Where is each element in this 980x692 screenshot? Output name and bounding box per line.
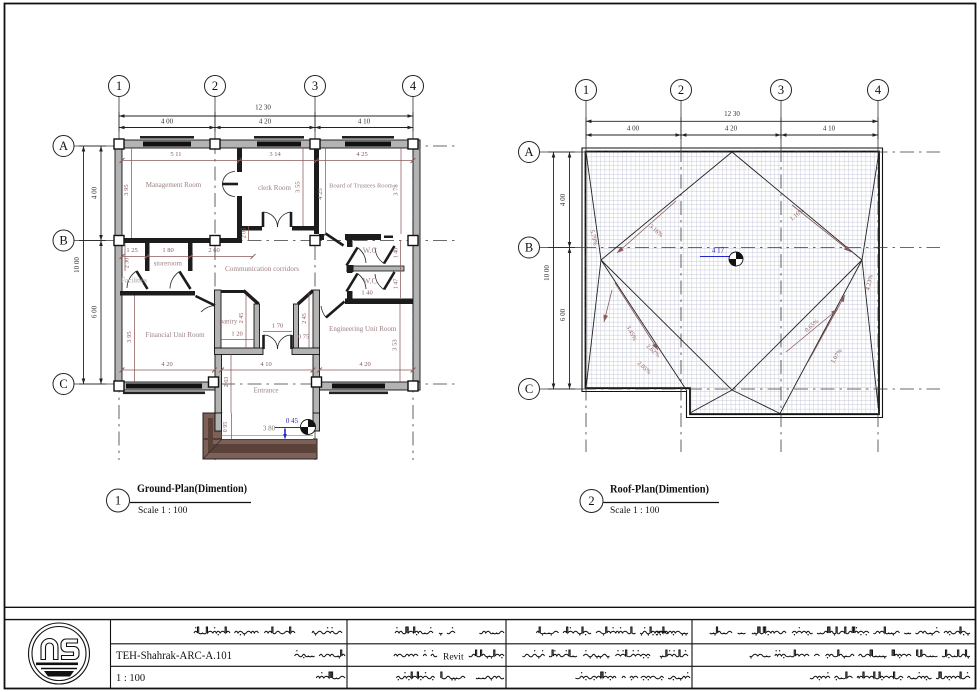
svg-text:B: B — [525, 241, 533, 255]
svg-text:C: C — [525, 382, 533, 396]
svg-text:2 45: 2 45 — [302, 313, 308, 324]
svg-text:2 63: 2 63 — [224, 377, 230, 388]
svg-text:2 30: 2 30 — [125, 258, 131, 269]
svg-text:3 14: 3 14 — [269, 151, 281, 158]
svg-text:clerk Room: clerk Room — [258, 184, 291, 192]
svg-text:A: A — [59, 139, 68, 153]
svg-text:2 60: 2 60 — [208, 247, 219, 254]
svg-text:storeroom: storeroom — [154, 260, 183, 268]
svg-text:3 55: 3 55 — [295, 181, 302, 192]
svg-text:0 45: 0 45 — [286, 417, 299, 425]
svg-text:4 25: 4 25 — [317, 188, 324, 199]
svg-text:2: 2 — [212, 79, 218, 93]
svg-text:4 17: 4 17 — [712, 247, 725, 255]
svg-text:Financial Unit Room: Financial Unit Room — [145, 331, 205, 339]
svg-text:4 10: 4 10 — [260, 361, 271, 368]
svg-text:4 20: 4 20 — [725, 125, 738, 133]
svg-text:Board of Trustees Room: Board of Trustees Room — [329, 183, 393, 190]
svg-text:TEH-Shahrak-ARC-A.101: TEH-Shahrak-ARC-A.101 — [116, 648, 232, 662]
svg-text:4 20: 4 20 — [359, 361, 370, 368]
svg-text:pantry: pantry — [219, 318, 237, 326]
svg-text:Ground-Plan(Dimention): Ground-Plan(Dimention) — [137, 481, 247, 495]
svg-text:10 00: 10 00 — [73, 257, 81, 273]
svg-text:3 78: 3 78 — [393, 184, 400, 195]
svg-text:4 00: 4 00 — [627, 125, 640, 133]
svg-text:12 30: 12 30 — [255, 104, 271, 112]
svg-text:Scale 1 : 100: Scale 1 : 100 — [138, 506, 188, 516]
svg-text:4: 4 — [875, 83, 882, 97]
svg-text:1: 1 — [116, 79, 122, 93]
svg-text:B: B — [59, 234, 67, 248]
svg-text:4: 4 — [410, 79, 417, 93]
svg-text:1 25: 1 25 — [126, 247, 137, 254]
svg-text:4 20: 4 20 — [259, 118, 272, 126]
svg-text:4 00: 4 00 — [559, 193, 567, 206]
svg-text:3 53: 3 53 — [392, 339, 399, 350]
svg-text:1: 1 — [583, 83, 589, 97]
svg-text:2 45: 2 45 — [239, 313, 245, 324]
svg-text:C: C — [59, 377, 67, 391]
svg-text:1 20: 1 20 — [231, 331, 242, 338]
svg-text:Entrance: Entrance — [254, 387, 279, 395]
svg-text:1 80: 1 80 — [162, 247, 173, 254]
svg-text:Scale 1 : 100: Scale 1 : 100 — [610, 506, 660, 516]
svg-text:Communication corridors: Communication corridors — [225, 265, 299, 273]
svg-text:1 40: 1 40 — [394, 248, 400, 259]
svg-text:1 : 100: 1 : 100 — [116, 673, 145, 684]
svg-text:W.C: W.C — [363, 277, 377, 286]
svg-text:1: 1 — [115, 494, 121, 508]
svg-text:4 20: 4 20 — [161, 361, 172, 368]
svg-text:5 11: 5 11 — [170, 151, 181, 158]
svg-text:3: 3 — [312, 79, 318, 93]
svg-text:1 70: 1 70 — [272, 323, 283, 330]
svg-text:1 47: 1 47 — [394, 279, 400, 290]
svg-text:4 25: 4 25 — [356, 151, 367, 158]
svg-text:A: A — [524, 145, 533, 159]
svg-text:6 00: 6 00 — [91, 305, 99, 318]
svg-text:2: 2 — [588, 494, 594, 508]
svg-text:4 00: 4 00 — [161, 118, 174, 126]
svg-text:3 95: 3 95 — [126, 331, 133, 342]
svg-text:Roof-Plan(Dimention): Roof-Plan(Dimention) — [610, 482, 709, 496]
svg-text:3 80: 3 80 — [263, 425, 276, 433]
svg-text:4 10: 4 10 — [823, 125, 836, 133]
svg-text:2: 2 — [678, 83, 684, 97]
svg-text:W.C: W.C — [363, 246, 377, 255]
svg-text:Revit: Revit — [443, 653, 464, 663]
svg-text:3: 3 — [778, 83, 784, 97]
svg-text:4 10: 4 10 — [358, 118, 371, 126]
svg-text:6 00: 6 00 — [559, 308, 567, 321]
svg-text:10 00: 10 00 — [543, 265, 551, 281]
svg-text:3 95: 3 95 — [123, 184, 130, 195]
svg-text:Management Room: Management Room — [146, 181, 202, 189]
svg-text:0 75: 0 75 — [298, 334, 309, 341]
svg-text:4 00: 4 00 — [91, 186, 99, 199]
svg-text:2 05: 2 05 — [242, 228, 248, 239]
svg-text:0 95: 0 95 — [223, 422, 229, 433]
svg-text:Engineering Unit Room: Engineering Unit Room — [329, 325, 397, 333]
svg-text:Facilities: Facilities — [121, 277, 147, 285]
svg-text:12 30: 12 30 — [724, 110, 740, 118]
svg-text:1 40: 1 40 — [361, 290, 372, 297]
